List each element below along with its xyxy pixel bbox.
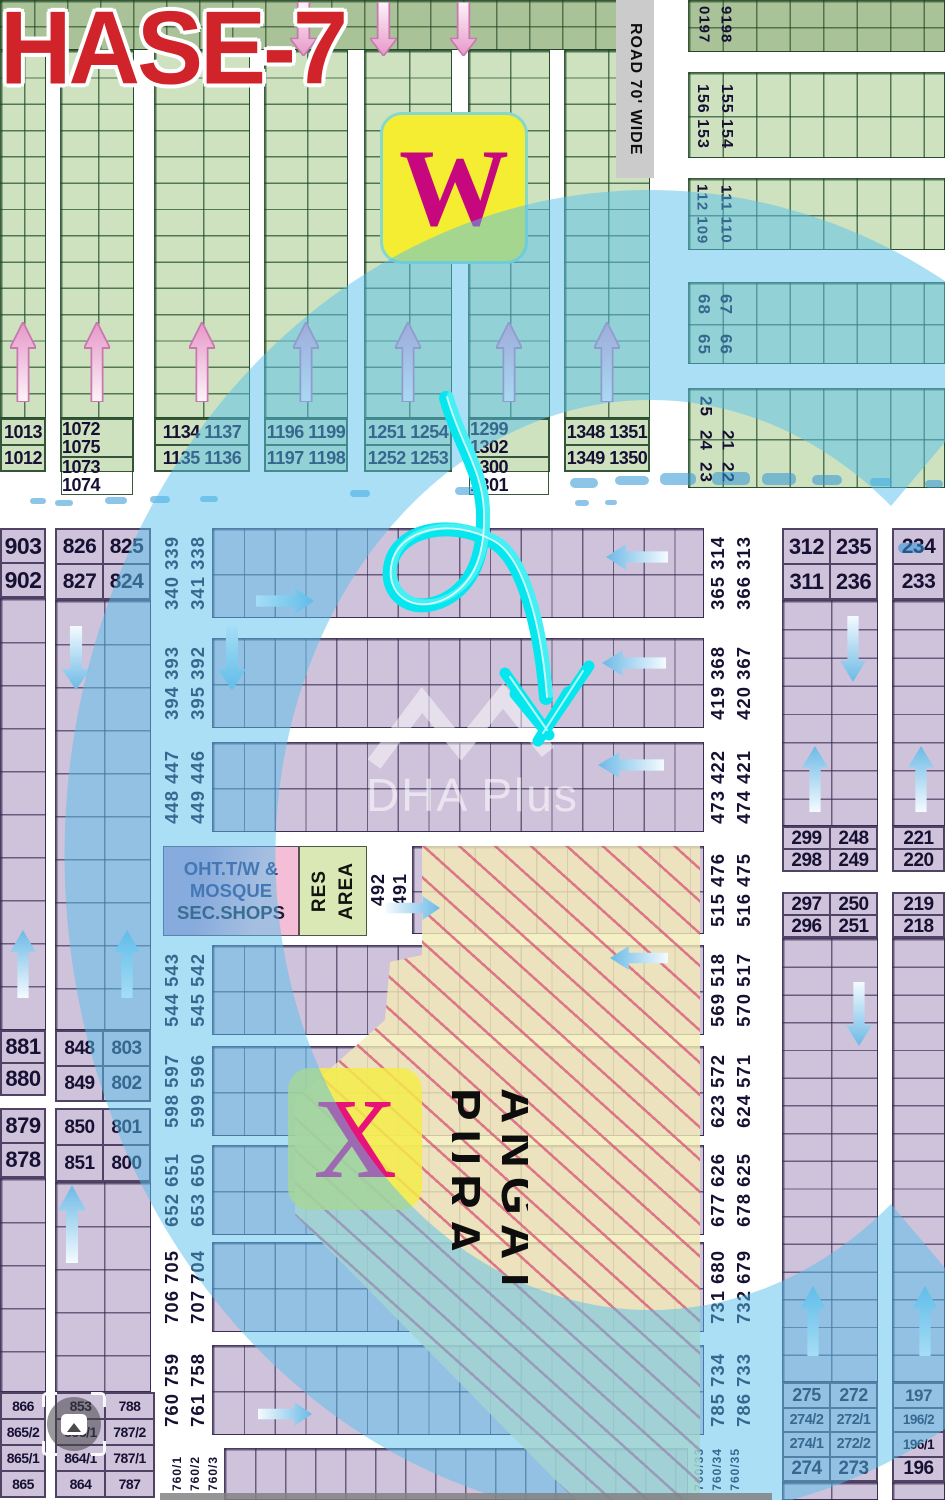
plot-number-rotated: 67	[714, 286, 738, 322]
up-arrow-icon	[114, 930, 140, 998]
plot-number-block: 312235311236	[782, 528, 878, 600]
plot-number: 801	[103, 1109, 150, 1145]
plot-number: 824	[103, 564, 150, 599]
plot-number-rotated: 760 759	[160, 1345, 185, 1435]
sector-w-letter: W	[399, 125, 509, 252]
plot-number: 850	[56, 1109, 103, 1145]
plot-number-text: 449 446	[189, 750, 208, 824]
plot-number: 218	[893, 915, 944, 937]
green-plot-numbers: 1196 11991197 1198	[264, 418, 348, 472]
up-arrow-icon	[802, 746, 828, 812]
plot-number-text: 365 314	[709, 536, 728, 610]
plot-number-block: 219218	[892, 892, 945, 938]
plot-number: 1197 1198	[265, 445, 347, 471]
res-area-line: AREA	[336, 862, 358, 920]
plot-number: 220	[893, 849, 944, 871]
plot-number-text: 707 704	[189, 1250, 208, 1324]
road-width-text: ROAD 70' WIDE	[626, 23, 644, 155]
plot-number: 274/1	[783, 1432, 830, 1457]
plot-number: 880	[1, 1063, 45, 1095]
plot-number-text: 112 109	[695, 184, 710, 244]
right-arrow-icon	[256, 588, 314, 614]
plot-number-rotated: 24	[694, 424, 718, 456]
sector-w-marker: W	[380, 112, 528, 264]
erased-text-fragment	[870, 478, 892, 486]
plot-number-text: 624 571	[735, 1054, 754, 1128]
plot-number-text: 492	[369, 873, 387, 906]
plot-number: 275	[783, 1383, 830, 1408]
row-strip	[412, 846, 704, 934]
plot-number-rotated: 341 338	[186, 528, 211, 618]
plot-number-rotated: 156 153	[690, 74, 714, 158]
plot-number-rotated: 732 679	[732, 1242, 757, 1332]
plot-number: 788	[105, 1393, 154, 1419]
erased-text-fragment	[660, 473, 696, 485]
plot-number: 865	[1, 1471, 45, 1497]
cyan-marker-arrow	[350, 380, 650, 770]
plot-number-rotated: 678 625	[732, 1145, 757, 1235]
plot-number-text: 599 596	[189, 1054, 208, 1128]
plot-number: 250	[830, 893, 877, 915]
plot-number-block: 197196/2196/1196	[892, 1382, 945, 1482]
plot-number-rotated: 760/33	[690, 1438, 707, 1500]
erased-text-fragment	[150, 496, 170, 503]
plot-number-text: 395 392	[189, 646, 208, 720]
plot-number-rotated: 706 705	[160, 1242, 185, 1332]
plot-number-text: 420 367	[735, 646, 754, 720]
down-arrow-icon	[450, 2, 477, 56]
plot-number-rotated: 448 447	[160, 742, 185, 832]
plot-number-text: 68	[696, 294, 713, 315]
plot-number-text: 66	[718, 334, 735, 355]
camera-lens-button[interactable]	[42, 1392, 106, 1456]
down-arrow-icon	[218, 626, 246, 690]
plot-number-block: 299248298249	[782, 826, 878, 872]
plot-number: 787/2	[105, 1419, 154, 1445]
up-arrow-icon	[189, 322, 215, 402]
plot-number-rotated: 491	[389, 846, 411, 934]
plot-number: 866	[1, 1393, 45, 1419]
plot-number: 787/1	[105, 1445, 154, 1471]
plot-number-text: 516 475	[735, 853, 754, 927]
green-plot-numbers: 10131012	[0, 418, 46, 472]
oht-line: SEC.SHOPS	[177, 902, 285, 924]
angat-pura-text: ANGAT PURA	[452, 1088, 528, 1500]
green-plot-numbers: 1134 11371135 1136	[154, 418, 250, 472]
erased-text-fragment	[762, 473, 796, 485]
plot-number: 251	[830, 915, 877, 937]
erased-text-fragment	[925, 480, 943, 488]
plot-number-rotated: 598 597	[160, 1046, 185, 1136]
plot-number: 865/2	[1, 1419, 45, 1445]
plot-number-rotated: 761 758	[186, 1345, 211, 1435]
up-arrow-icon	[10, 930, 36, 998]
plot-number-rotated: 677 626	[706, 1145, 731, 1235]
plot-number: 272/2	[830, 1432, 877, 1457]
plot-number-block: 881880	[0, 1030, 46, 1096]
plot-number-block: 848803849802	[55, 1030, 151, 1102]
plot-number-text: 732 679	[735, 1250, 754, 1324]
plot-number-text: 155 154	[718, 84, 734, 149]
plot-number-text: 760/3	[207, 1456, 219, 1491]
plot-number: 196	[893, 1457, 944, 1482]
plot-number-text: 25	[698, 396, 715, 417]
plot-number-rotated: 366 313	[732, 528, 757, 618]
camera-lens-icon	[47, 1397, 101, 1451]
plot-number-rotated: 624 571	[732, 1046, 757, 1136]
plot-number-rotated: 66	[714, 326, 738, 362]
plot-number-text: 21	[720, 430, 737, 451]
plot-number-rotated: 25	[694, 390, 718, 422]
plot-number-text: 341 338	[189, 536, 208, 610]
plot-number-rotated: 340 339	[160, 528, 185, 618]
plot-number: 1073 1074	[61, 457, 133, 495]
plot-number: 297	[783, 893, 830, 915]
mosque-shops-block: OHT.T/W & MOSQUE SEC.SHOPS	[163, 846, 299, 936]
plot-number: 298	[783, 849, 830, 871]
plot-number: 800	[103, 1145, 150, 1181]
plot-number-rotated: 473 422	[706, 742, 731, 832]
plot-number: 825	[103, 529, 150, 564]
plot-number-rotated: 544 543	[160, 945, 185, 1035]
plot-number: 272	[830, 1383, 877, 1408]
plot-number-text: 760/33	[693, 1448, 705, 1491]
plot-number: 299	[783, 827, 830, 849]
plot-number-text: 760/2	[189, 1456, 201, 1491]
plot-number-text: 448 447	[163, 750, 182, 824]
erased-text-fragment	[898, 543, 924, 553]
plot-number-rotated: 492	[367, 846, 389, 934]
plot-number: 787	[105, 1471, 154, 1497]
plot-number-rotated: 760/35	[726, 1438, 743, 1500]
bracket-icon	[91, 1441, 106, 1456]
plot-number: 219	[893, 893, 944, 915]
plot-number-text: 9198	[719, 6, 734, 43]
plot-number-text: 760 759	[163, 1353, 182, 1427]
plot-column	[782, 1482, 878, 1500]
up-arrow-icon	[800, 1286, 826, 1356]
plot-number-text: 474 421	[735, 750, 754, 824]
res-area-line: RES	[309, 870, 331, 912]
plot-number: 849	[56, 1066, 103, 1101]
plot-number-rotated: 545 542	[186, 945, 211, 1035]
erased-text-fragment	[105, 497, 127, 504]
plot-number: 312	[783, 529, 830, 564]
plot-number-text: 760/1	[171, 1456, 183, 1491]
plot-number-rotated: 420 367	[732, 638, 757, 728]
plot-number: 248	[830, 827, 877, 849]
up-arrow-icon	[10, 322, 36, 402]
up-arrow-icon	[84, 322, 110, 402]
plot-number: 233	[893, 564, 944, 599]
plot-column	[0, 1178, 46, 1392]
erased-text-fragment	[200, 496, 218, 502]
plot-number-text: 24	[698, 430, 715, 451]
plot-number-rotated: 68	[692, 286, 716, 322]
plot-number: 1134 1137	[155, 419, 249, 445]
plot-number-text: 0197	[697, 6, 712, 43]
plot-number-block: 234233	[892, 528, 945, 600]
plot-number-block: 297250296251	[782, 892, 878, 938]
plot-number-block: 826825827824	[55, 528, 151, 600]
plot-column	[892, 1482, 945, 1500]
plot-number-rotated: 707 704	[186, 1242, 211, 1332]
plot-number: 865/1	[1, 1445, 45, 1471]
plot-number: 878	[1, 1143, 45, 1177]
plot-number-text: 731 680	[709, 1250, 728, 1324]
plot-number-text: 760/34	[711, 1448, 723, 1491]
up-arrow-icon	[293, 322, 319, 402]
plot-number-rotated: 570 517	[732, 945, 757, 1035]
plot-number: 881	[1, 1031, 45, 1063]
up-arrow-icon	[912, 1286, 938, 1356]
down-arrow-icon	[62, 626, 90, 690]
plot-number: 879	[1, 1109, 45, 1143]
plot-number-rotated: 599 596	[186, 1046, 211, 1136]
down-arrow-icon	[370, 2, 397, 56]
plot-number: 274/2	[783, 1408, 830, 1433]
plot-number-text: 65	[696, 334, 713, 355]
plot-number: 1135 1136	[155, 445, 249, 471]
plot-number-rotated: 653 650	[186, 1145, 211, 1235]
plot-number: 864	[56, 1471, 105, 1497]
plot-number-rotated: 9198	[714, 0, 738, 50]
road-width-label: ROAD 70' WIDE	[616, 0, 654, 178]
plot-number-block: 850801851800	[55, 1108, 151, 1182]
erased-text-fragment	[55, 500, 73, 506]
plot-number-text: 786 733	[735, 1353, 754, 1427]
oht-line: OHT.T/W &	[184, 858, 279, 880]
right-arrow-icon	[386, 896, 440, 920]
down-arrow-icon	[840, 616, 866, 682]
plot-number: 1072 1075	[61, 419, 133, 457]
up-arrow-icon	[58, 1185, 86, 1263]
plot-number-rotated: 155 154	[714, 74, 738, 158]
erased-text-fragment	[712, 472, 750, 485]
plot-number-text: 366 313	[735, 536, 754, 610]
down-arrow-icon	[846, 982, 872, 1046]
plot-number: 1013	[1, 419, 45, 445]
phase-title: HASE-7	[0, 0, 345, 108]
plot-number-rotated: 731 680	[706, 1242, 731, 1332]
plot-number-rotated: 569 518	[706, 945, 731, 1035]
plot-number-block: 221220	[892, 826, 945, 872]
plot-number-text: 569 518	[709, 953, 728, 1027]
erased-text-fragment	[812, 475, 842, 485]
plot-number-text: 760/35	[729, 1448, 741, 1491]
plot-number-rotated: 515 476	[706, 846, 731, 934]
plot-number-rotated: 785 734	[706, 1345, 731, 1435]
plot-number: 274	[783, 1457, 830, 1482]
left-arrow-icon	[610, 946, 668, 970]
sector-x-letter: X	[314, 1073, 396, 1205]
angat-pura-label: ANGAT PURA	[452, 1088, 528, 1500]
right-arrow-icon	[258, 1402, 312, 1426]
plot-number-text: 340 339	[163, 536, 182, 610]
plot-number-block: 903902	[0, 528, 46, 598]
plot-number-text: 544 543	[163, 953, 182, 1027]
plot-number: 296	[783, 915, 830, 937]
plot-number: 249	[830, 849, 877, 871]
map-canvas: HASE-7 ROAD 70' WIDE W OHT.T/W & MOSQUE …	[0, 0, 945, 1500]
plot-number-rotated: 112 109	[690, 179, 714, 249]
plot-number-text: 678 625	[735, 1153, 754, 1227]
plot-number: 235	[830, 529, 877, 564]
plot-number-rotated: 516 475	[732, 846, 757, 934]
plot-number: 236	[830, 564, 877, 599]
plot-number-rotated: 786 733	[732, 1345, 757, 1435]
plot-number: 197	[893, 1383, 944, 1408]
plot-number-text: 570 517	[735, 953, 754, 1027]
plot-number-block: 879878	[0, 1108, 46, 1178]
plot-number-rotated: 111 110	[714, 179, 738, 249]
plot-number-rotated: 21	[716, 424, 740, 456]
plot-number: 272/1	[830, 1408, 877, 1433]
plot-number-text: 515 476	[709, 853, 728, 927]
plot-number: 196/1	[893, 1432, 944, 1457]
plot-number: 826	[56, 529, 103, 564]
plot-number-text: 598 597	[163, 1054, 182, 1128]
green-plot-numbers: 1072 10751073 1074	[60, 418, 134, 472]
res-area-block: RES AREA	[299, 846, 367, 936]
plot-number-text: 156 153	[694, 84, 710, 149]
plot-number-text: 652 651	[163, 1153, 182, 1227]
plot-number-rotated: 760/34	[708, 1438, 725, 1500]
plot-number-text: 67	[718, 294, 735, 315]
plot-number-text: 623 572	[709, 1054, 728, 1128]
plot-number: 848	[56, 1031, 103, 1066]
plot-number-rotated: 449 446	[186, 742, 211, 832]
plot-number-text: 111 110	[719, 185, 734, 244]
plot-number-rotated: 419 368	[706, 638, 731, 728]
plot-number: 273	[830, 1457, 877, 1482]
up-arrow-icon	[908, 746, 934, 812]
plot-number-rotated: 65	[692, 326, 716, 362]
plot-number: 1196 1199	[265, 419, 347, 445]
plot-number: 196/2	[893, 1408, 944, 1433]
plot-number-block: 275272274/2272/1274/1272/2274273	[782, 1382, 878, 1482]
plot-number-text: 545 542	[189, 953, 208, 1027]
plot-number-rotated: 652 651	[160, 1145, 185, 1235]
plot-number-text: 706 705	[163, 1250, 182, 1324]
plot-number: 803	[103, 1031, 150, 1066]
bottom-bar	[160, 1493, 772, 1500]
plot-number: 802	[103, 1066, 150, 1101]
plot-number-rotated: 394 393	[160, 638, 185, 728]
plot-number-rotated: 395 392	[186, 638, 211, 728]
plot-number: 902	[1, 563, 45, 597]
oht-line: MOSQUE	[190, 880, 272, 902]
plot-number: 851	[56, 1145, 103, 1181]
plot-number-text: 473 422	[709, 750, 728, 824]
plot-number: 827	[56, 564, 103, 599]
plot-number: 1012	[1, 445, 45, 471]
plot-number: 221	[893, 827, 944, 849]
plot-number-text: 677 626	[709, 1153, 728, 1227]
plot-number-text: 785 734	[709, 1353, 728, 1427]
plot-number-rotated: 474 421	[732, 742, 757, 832]
plot-number-text: 394 393	[163, 646, 182, 720]
plot-number-text: 419 368	[709, 646, 728, 720]
plot-number: 903	[1, 529, 45, 563]
plot-number-text: 761 758	[189, 1353, 208, 1427]
plot-number-rotated: 365 314	[706, 528, 731, 618]
erased-text-fragment	[30, 498, 46, 504]
plot-number: 311	[783, 564, 830, 599]
plot-number-text: 653 650	[189, 1153, 208, 1227]
plot-number-rotated: 623 572	[706, 1046, 731, 1136]
sector-x-marker: X	[288, 1068, 422, 1210]
plot-number-rotated: 0197	[692, 0, 716, 50]
plot-number-block: 866865/2865/1865	[0, 1392, 46, 1498]
